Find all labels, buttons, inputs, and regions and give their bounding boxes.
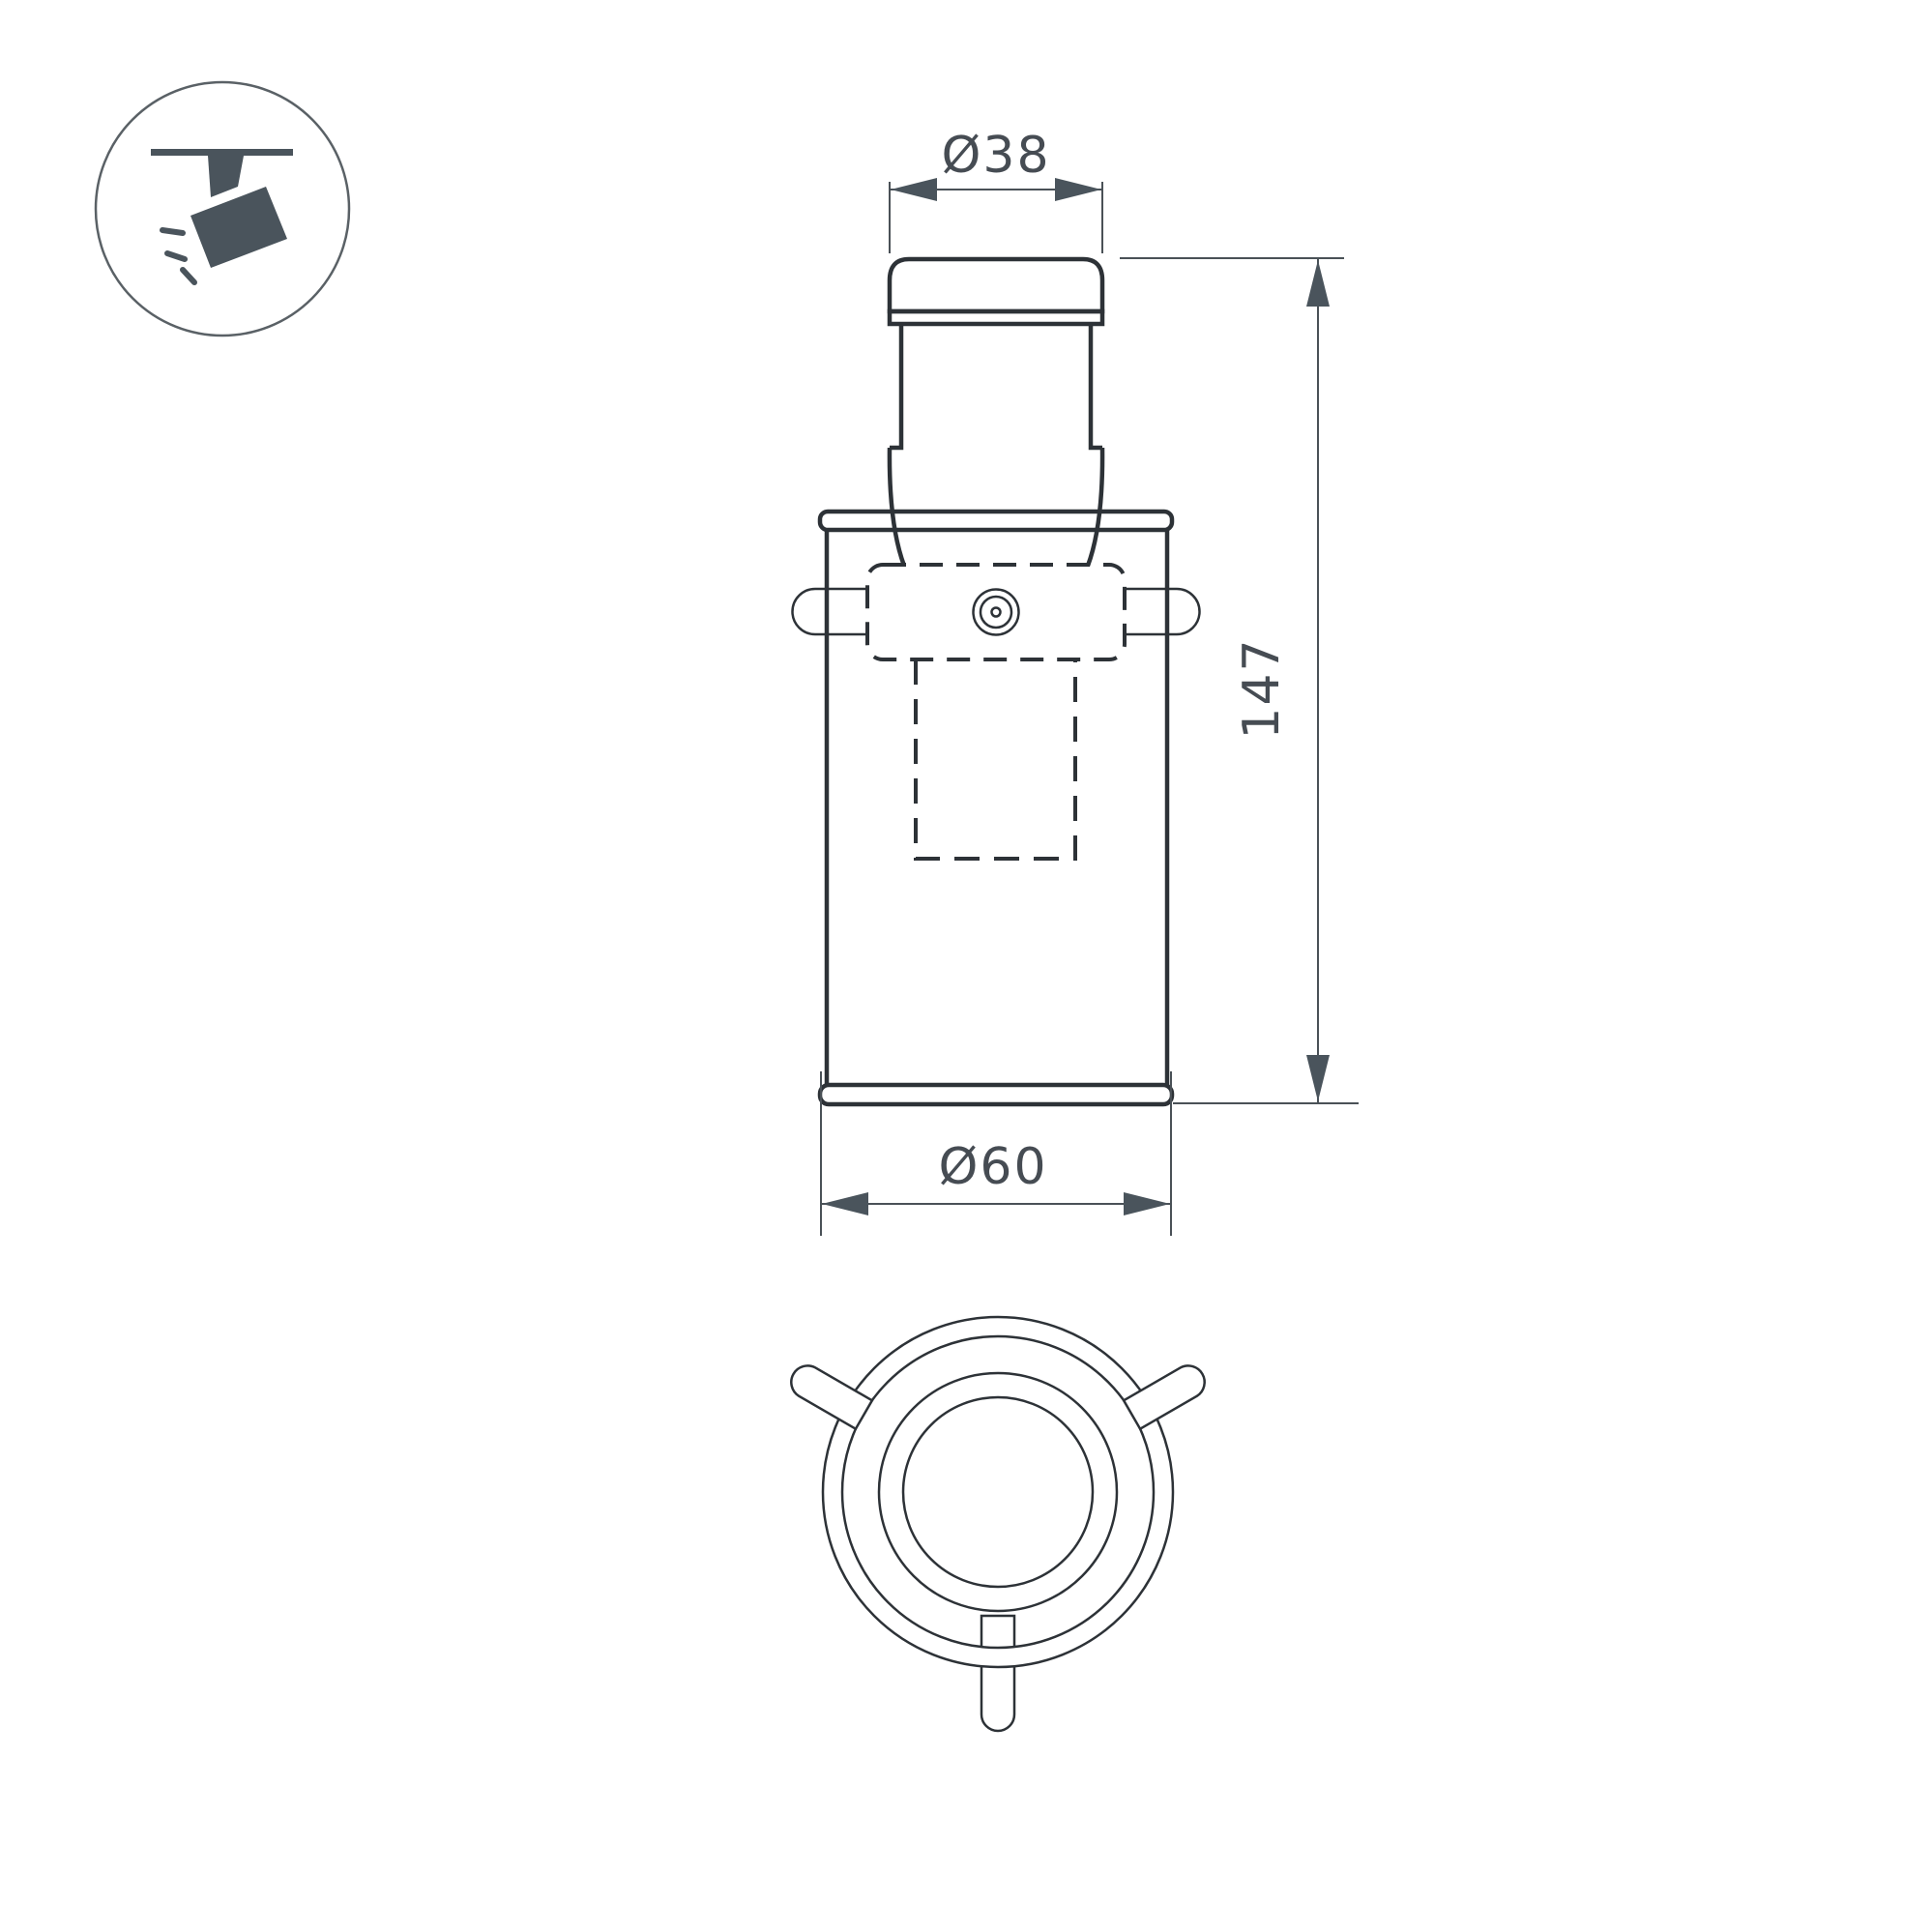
dimension-head-diameter: Ø38 [890,127,1102,253]
arrowhead-top [1306,260,1330,307]
hidden-inner-module [916,659,1075,859]
arrowhead-right [1055,178,1101,201]
arrowhead-left [891,178,937,201]
dimension-label: 147 [1233,637,1291,739]
dimension-label: Ø60 [938,1138,1047,1196]
arrowhead-left [822,1192,868,1215]
screw-detail [974,590,1019,635]
adjustment-knob-left [793,589,870,634]
top-flange [820,512,1172,530]
swivel-curve-left [890,448,904,566]
dimension-overall-height: 147 [1120,258,1359,1103]
prong-upper-left [791,1365,872,1428]
adjustment-knob-right [1123,589,1200,634]
head-collar [890,311,1102,324]
bottom-view [791,1317,1204,1731]
luminaire-technical-drawing: Ø38 147 Ø60 [0,0,1932,1932]
arrowhead-right [1124,1192,1170,1215]
drawing-page: Ø38 147 Ø60 [0,0,1932,1932]
prong-upper-right [1124,1365,1205,1428]
ceiling-track-spotlight-icon [96,82,349,336]
dimension-label: Ø38 [941,127,1050,185]
track-bar [151,149,293,156]
head-cap [890,259,1102,311]
bottom-rim [820,1085,1172,1104]
head-ring-inner [903,1397,1093,1587]
prong-bottom [981,1616,1014,1731]
arrowhead-bottom [1306,1055,1330,1101]
outer-rim-fill [823,1317,1173,1667]
rim-circle-inner [842,1336,1154,1648]
front-view [793,259,1200,1104]
head-stem [890,324,1102,448]
swivel-curve-right [1088,448,1102,566]
head-ring-outer [879,1373,1117,1611]
